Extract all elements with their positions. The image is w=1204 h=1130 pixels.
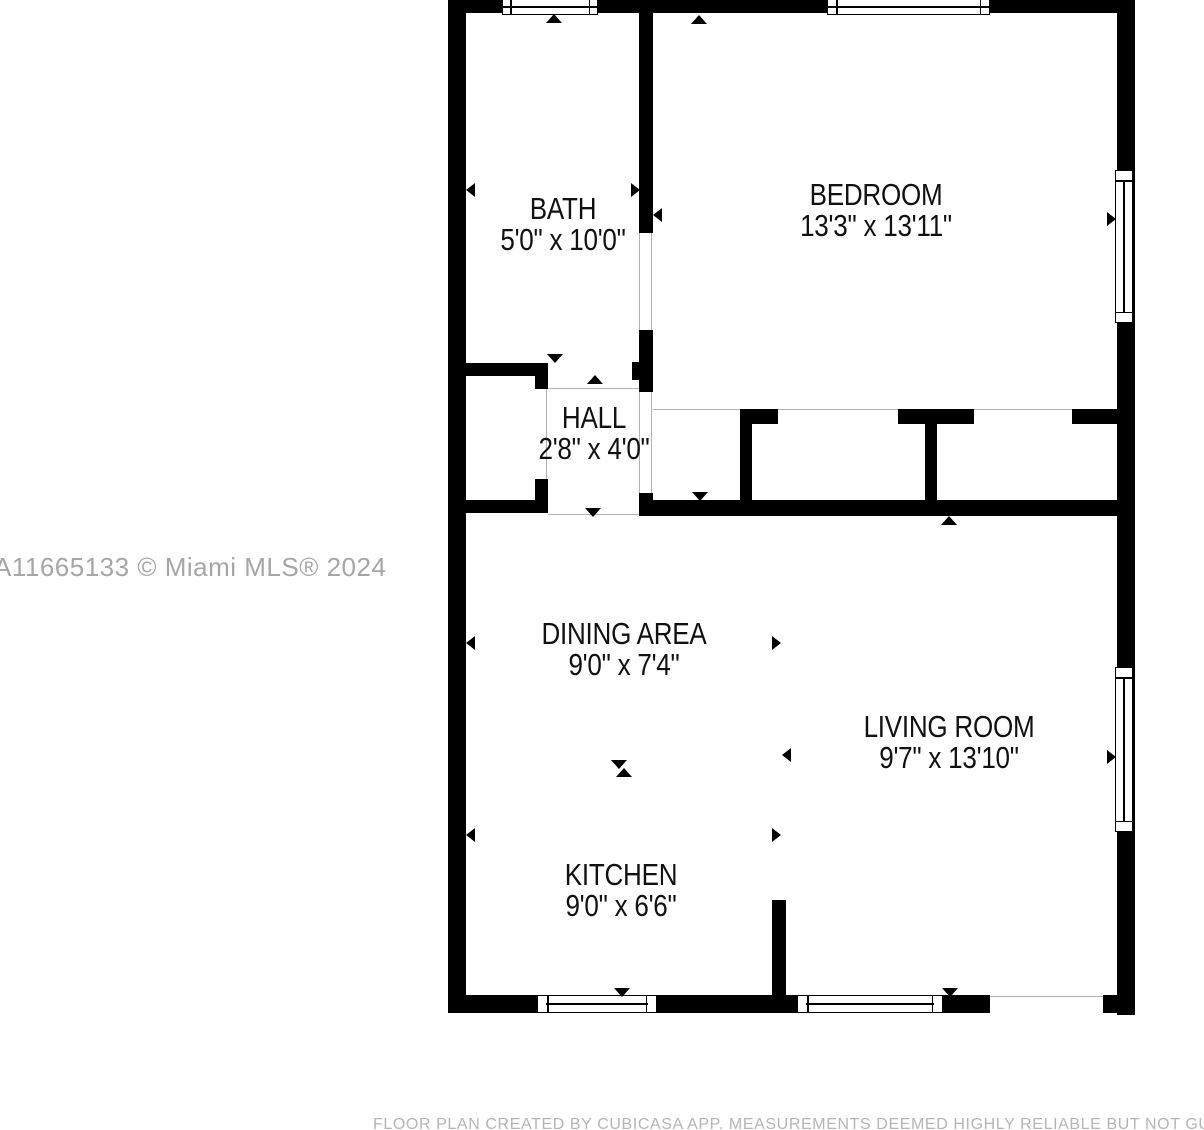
measure-arrow-icon: [772, 636, 781, 650]
room-label-living-room: LIVING ROOM 9'7" x 13'10": [864, 711, 1035, 773]
measure-arrow-icon: [466, 828, 475, 842]
measure-arrow-icon: [653, 208, 662, 222]
wall-hall-closet: [466, 363, 548, 376]
door-opening-line: [653, 409, 1117, 410]
measure-arrow-icon: [692, 492, 708, 501]
measure-arrow-icon: [941, 516, 957, 525]
room-dimensions: 5'0" x 10'0": [500, 224, 625, 255]
wall-left: [448, 0, 466, 1013]
measure-arrow-icon: [616, 768, 632, 777]
room-label-bath: BATH 5'0" x 10'0": [500, 193, 625, 255]
measure-arrow-icon: [547, 354, 563, 363]
room-name: HALL: [538, 402, 649, 433]
room-label-bedroom: BEDROOM 13'3" x 13'11": [800, 179, 952, 241]
wall-bottom-segment: [1103, 995, 1135, 1013]
wall-hall-closet: [535, 376, 548, 389]
measure-arrow-icon: [691, 15, 707, 24]
front-door-threshold-line: [990, 996, 1103, 997]
door-opening-line: [639, 233, 640, 330]
measure-arrow-icon: [614, 988, 630, 997]
wall-right: [1117, 0, 1135, 1015]
measure-arrow-icon: [466, 183, 475, 197]
window-icon: [1115, 170, 1133, 323]
wall-bath-bedroom: [639, 13, 653, 233]
room-label-dining-area: DINING AREA 9'0" x 7'4": [541, 618, 706, 680]
measure-arrow-icon: [546, 14, 562, 23]
window-icon: [827, 0, 990, 15]
door-opening-line: [651, 392, 652, 493]
wall-kitchen-living: [772, 900, 786, 1013]
measure-arrow-icon: [782, 748, 791, 762]
measure-arrow-icon: [1107, 750, 1116, 764]
measure-arrow-icon: [466, 636, 475, 650]
room-name: BATH: [500, 193, 625, 224]
room-name: DINING AREA: [541, 618, 706, 649]
disclaimer-text: FLOOR PLAN CREATED BY CUBICASA APP. MEAS…: [373, 1116, 1204, 1130]
room-name: LIVING ROOM: [864, 711, 1035, 742]
window-icon: [1115, 667, 1133, 832]
measure-arrow-icon: [1107, 212, 1116, 226]
room-name: KITCHEN: [565, 859, 678, 890]
room-dimensions: 13'3" x 13'11": [800, 210, 952, 241]
room-dimensions: 9'7" x 13'10": [864, 742, 1035, 773]
measure-arrow-icon: [631, 183, 640, 197]
room-label-kitchen: KITCHEN 9'0" x 6'6": [565, 859, 678, 921]
wall-bedroom-living: [640, 500, 1117, 516]
measure-arrow-icon: [772, 828, 781, 842]
room-label-hall: HALL 2'8" x 4'0": [538, 402, 649, 464]
room-dimensions: 9'0" x 7'4": [541, 649, 706, 680]
window-icon: [537, 995, 657, 1013]
floor-plan: BATH 5'0" x 10'0" BEDROOM 13'3" x 13'11"…: [0, 0, 1204, 1130]
wall-hall-closet: [466, 500, 548, 513]
door-opening-line: [548, 388, 639, 389]
wall-closet: [898, 409, 974, 424]
mls-watermark: A11665133 © Miami MLS® 2024: [0, 552, 386, 583]
room-name: BEDROOM: [800, 179, 952, 210]
measure-arrow-icon: [587, 375, 603, 384]
measure-arrow-icon: [942, 988, 958, 997]
wall-stub: [632, 362, 639, 380]
wall-closet: [1072, 409, 1117, 424]
wall-bottom-segment: [943, 995, 990, 1013]
window-icon: [502, 0, 598, 15]
window-icon: [797, 995, 943, 1013]
wall-bottom-segment: [448, 995, 537, 1013]
wall-closet: [740, 409, 778, 424]
door-opening-line: [651, 233, 652, 330]
room-dimensions: 9'0" x 6'6": [565, 890, 678, 921]
wall-bath-bedroom: [639, 330, 653, 392]
room-dimensions: 2'8" x 4'0": [538, 433, 649, 464]
measure-arrow-icon: [585, 508, 601, 517]
